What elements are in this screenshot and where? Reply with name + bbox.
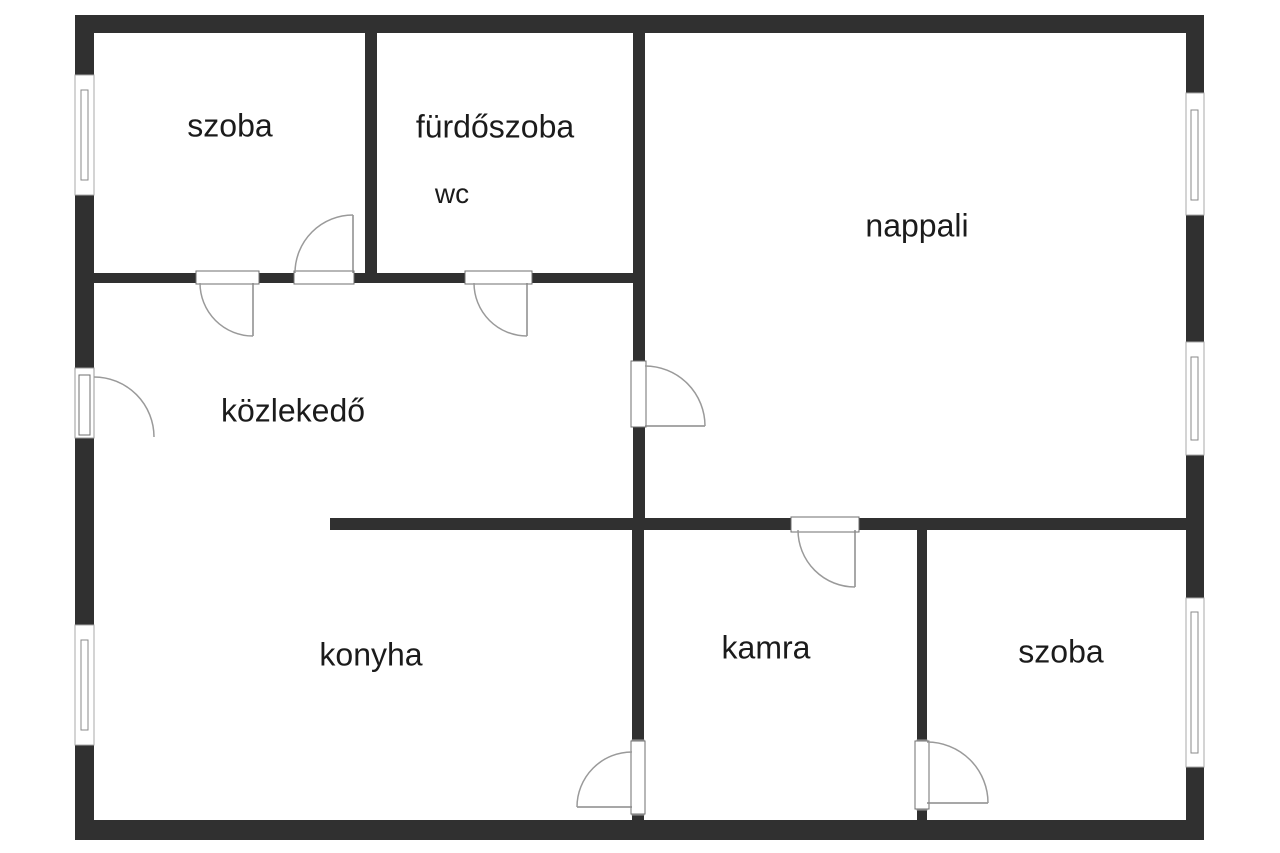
wall-nappali-left-seg2 [633,427,645,518]
window-left-konyha [75,625,94,745]
door-szoba-bottom-right [915,740,988,810]
wall-middle-seg2 [855,518,1186,530]
door-entrance [75,368,154,438]
room-label-kozlekedo: közlekedő [221,393,365,430]
wall-outer-bottom [75,820,1204,840]
wall-middle-seg1 [330,518,793,530]
wall-konyha-kamra-seg2 [632,815,644,820]
wall-outer-left-seg3 [75,438,94,625]
wall-hall-top-seg4 [530,273,645,283]
window-right-szoba [1186,598,1204,767]
wall-hall-top-seg1 [94,273,198,283]
window-right-nappali-bottom [1186,342,1204,455]
room-label-furdoszoba: fürdőszoba [416,109,574,146]
wall-kamra-szoba-seg2 [917,810,927,820]
room-label-wc: wc [435,178,469,210]
wall-outer-left-seg1 [75,33,94,75]
doors [75,215,988,815]
window-left-szoba [75,75,94,195]
wall-hall-top-seg2 [257,273,295,283]
door-szoba-top-left [294,215,354,284]
room-label-nappali: nappali [865,208,968,245]
wall-nappali-left-seg1 [633,33,645,362]
wall-konyha-kamra-seg1 [632,530,644,740]
room-label-szoba-bottom-right: szoba [1018,634,1103,671]
door-kamra [791,517,859,587]
door-konyha [577,740,645,815]
wall-outer-left-seg4 [75,745,94,820]
door-nappali [631,361,705,427]
room-label-szoba-top-left: szoba [187,108,272,145]
door-furdoszoba [465,271,532,336]
wall-outer-right-seg2 [1186,215,1204,342]
wall-outer-right-seg1 [1186,33,1204,93]
room-label-kamra: kamra [722,630,811,667]
door-kozlekedo-left [196,271,259,336]
floor-plan: szoba fürdőszoba wc nappali közlekedő ko… [0,0,1280,853]
wall-outer-right-seg4 [1186,767,1204,820]
wall-outer-top [75,15,1204,33]
wall-outer-left-seg2 [75,195,94,368]
wall-szoba-furdoszoba [365,33,377,273]
room-label-konyha: konyha [319,637,422,674]
wall-kamra-szoba-seg1 [917,530,927,740]
wall-hall-top-seg3 [353,273,467,283]
window-right-nappali-top [1186,93,1204,215]
wall-outer-right-seg3 [1186,455,1204,598]
